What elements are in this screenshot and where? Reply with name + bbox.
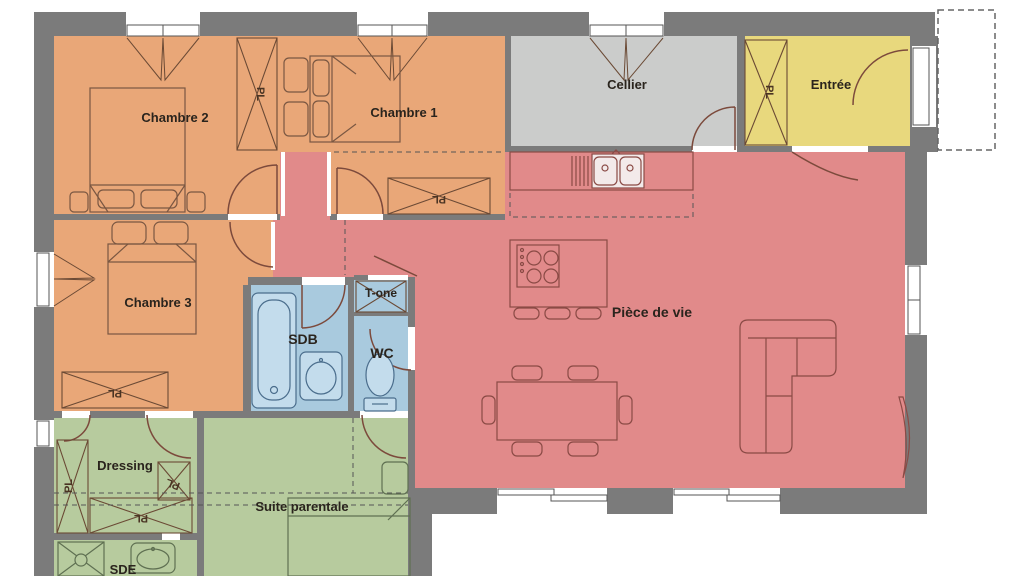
label-technical: T-one [365,286,397,300]
wall-dressing-suite [197,418,204,576]
closet-label: PL [63,479,75,493]
room-living-main [505,152,915,488]
bay-window-sash [551,495,607,501]
closet-label: PL [254,87,266,101]
porch-outline [938,10,995,150]
closet-label: PL [432,193,446,205]
window-frame [37,253,49,306]
label-sdb: SDB [288,331,318,347]
closet-label: PL [763,85,775,99]
floor-plan-page: PL PL PL PL PL PL PL [0,0,1024,576]
label-cellier: Cellier [607,77,647,92]
gap-door-sde [162,533,180,540]
wall-suite-living [408,418,415,488]
sdb-sink [300,352,342,400]
gap-door-dressing-b [145,411,193,418]
wall-bedrooms-h [54,214,505,220]
gap-doorway-strip-right [327,152,331,216]
closet-label: PL [108,387,122,399]
gap-door-ch2 [228,214,277,220]
bay-window-sash [727,495,780,501]
room-cellier [505,36,740,150]
gap-door-suite [360,411,408,418]
wall-technical-wc [354,312,408,316]
gap-door-ch1 [337,214,383,220]
gap-passage-strip [280,214,330,220]
room-dressing [54,418,197,533]
gap-door-wc [408,327,415,370]
label-piece-de-vie: Pièce de vie [612,304,692,320]
bathtub [252,293,296,408]
gap-door-sdb [302,277,345,285]
room-chambre3 [54,218,273,415]
wall-sdb-wc [348,277,354,415]
toilet [364,354,396,411]
label-wc: WC [370,345,393,361]
gap-slide-technical [368,275,408,280]
wall-ch3-sdb [243,285,251,411]
label-chambre2: Chambre 2 [141,110,208,125]
label-entree: Entrée [811,77,851,92]
gap-doorway-strip-left [281,152,285,216]
closet-label: PL [134,512,148,524]
room-living-strip [280,152,330,218]
gap-door-ch3 [271,222,275,270]
wall-bottom [413,488,927,514]
bay-window-sash [674,489,729,495]
room-living-corridor [273,218,415,280]
room-suite [204,418,408,576]
door-frame-front [913,48,929,125]
porch [938,10,995,150]
window-frame [37,421,49,446]
gap-door-cellier [692,146,737,152]
wall-bottom-left [408,488,432,576]
wall-cellier-entree [737,36,745,146]
gap-door-entree-salon [792,146,868,152]
gap-door-dressing-a [62,411,90,418]
label-dressing: Dressing [97,458,153,473]
label-suite-parentale: Suite parentale [255,499,348,514]
floor-plan: PL PL PL PL PL PL PL [0,0,1024,576]
wall-ch1-cellier [505,36,511,152]
label-chambre3: Chambre 3 [124,295,191,310]
bay-window-sash [498,489,554,495]
label-chambre1: Chambre 1 [370,105,437,120]
room-living-left [415,218,505,488]
label-sde: SDE [110,562,137,576]
